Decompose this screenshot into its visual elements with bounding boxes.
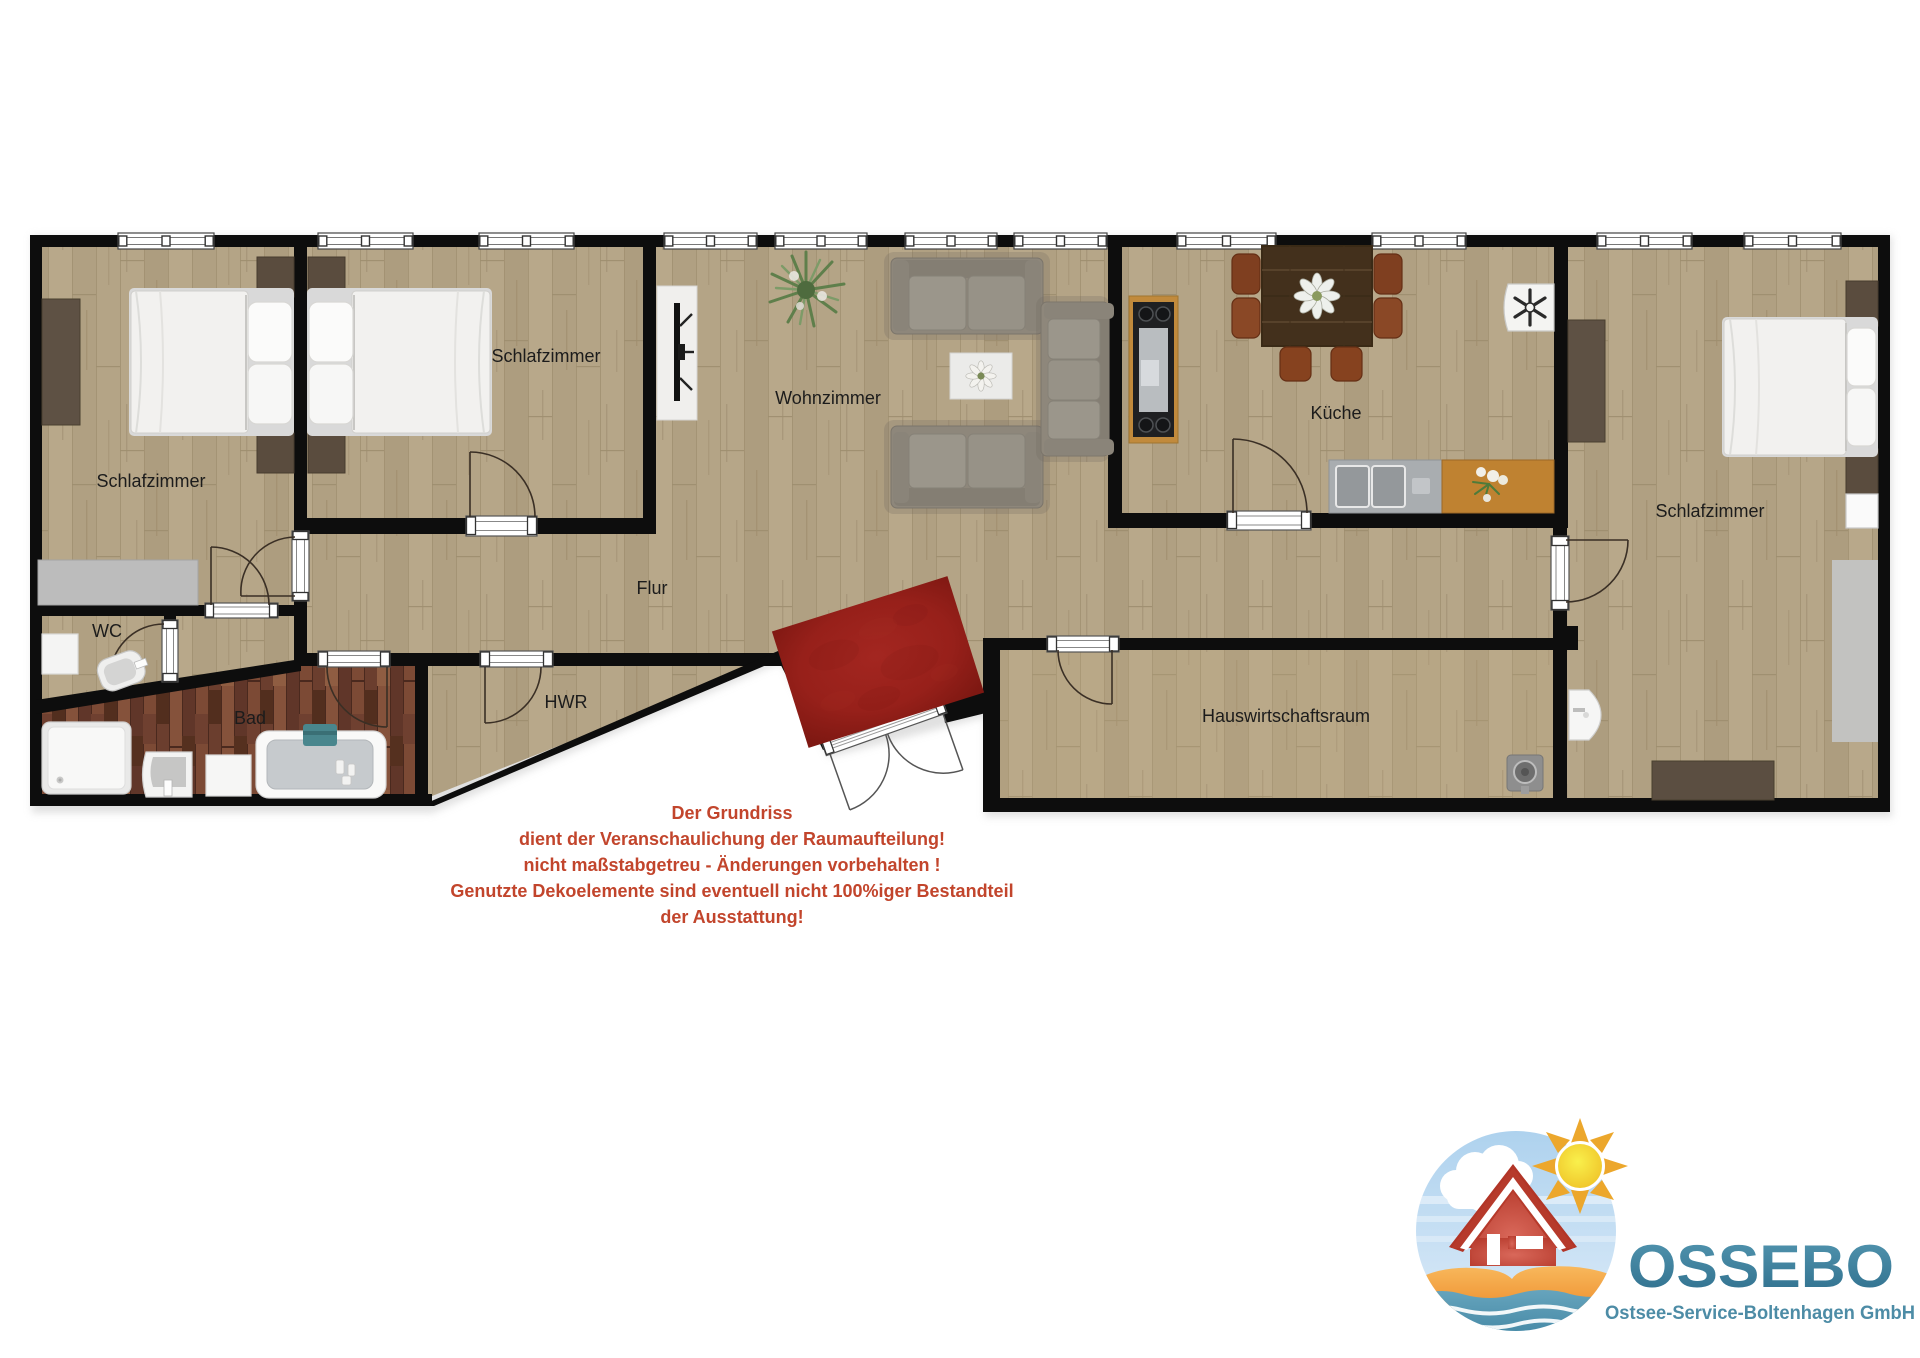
svg-text:Schlafzimmer: Schlafzimmer	[1655, 501, 1764, 521]
svg-text:Der Grundriss: Der Grundriss	[671, 803, 792, 823]
svg-text:Genutzte Dekoelemente sind eve: Genutzte Dekoelemente sind eventuell nic…	[450, 881, 1013, 901]
svg-text:Hauswirtschaftsraum: Hauswirtschaftsraum	[1202, 706, 1370, 726]
svg-text:Flur: Flur	[637, 578, 668, 598]
svg-text:Wohnzimmer: Wohnzimmer	[775, 388, 881, 408]
svg-text:dient der Veranschaulichung de: dient der Veranschaulichung der Raumauft…	[519, 829, 945, 849]
svg-text:Schlafzimmer: Schlafzimmer	[491, 346, 600, 366]
svg-text:Ostsee-Service-Boltenhagen Gmb: Ostsee-Service-Boltenhagen GmbH	[1605, 1303, 1915, 1324]
svg-text:der Ausstattung!: der Ausstattung!	[660, 907, 803, 927]
svg-text:Bad: Bad	[234, 708, 266, 728]
svg-text:WC: WC	[92, 621, 122, 641]
svg-text:OSSEBO: OSSEBO	[1628, 1233, 1894, 1300]
svg-text:Schlafzimmer: Schlafzimmer	[96, 471, 205, 491]
svg-text:nicht maßstabgetreu - Änderung: nicht maßstabgetreu - Änderungen vorbeha…	[523, 855, 940, 875]
svg-text:HWR: HWR	[545, 692, 588, 712]
svg-text:Küche: Küche	[1310, 403, 1361, 423]
